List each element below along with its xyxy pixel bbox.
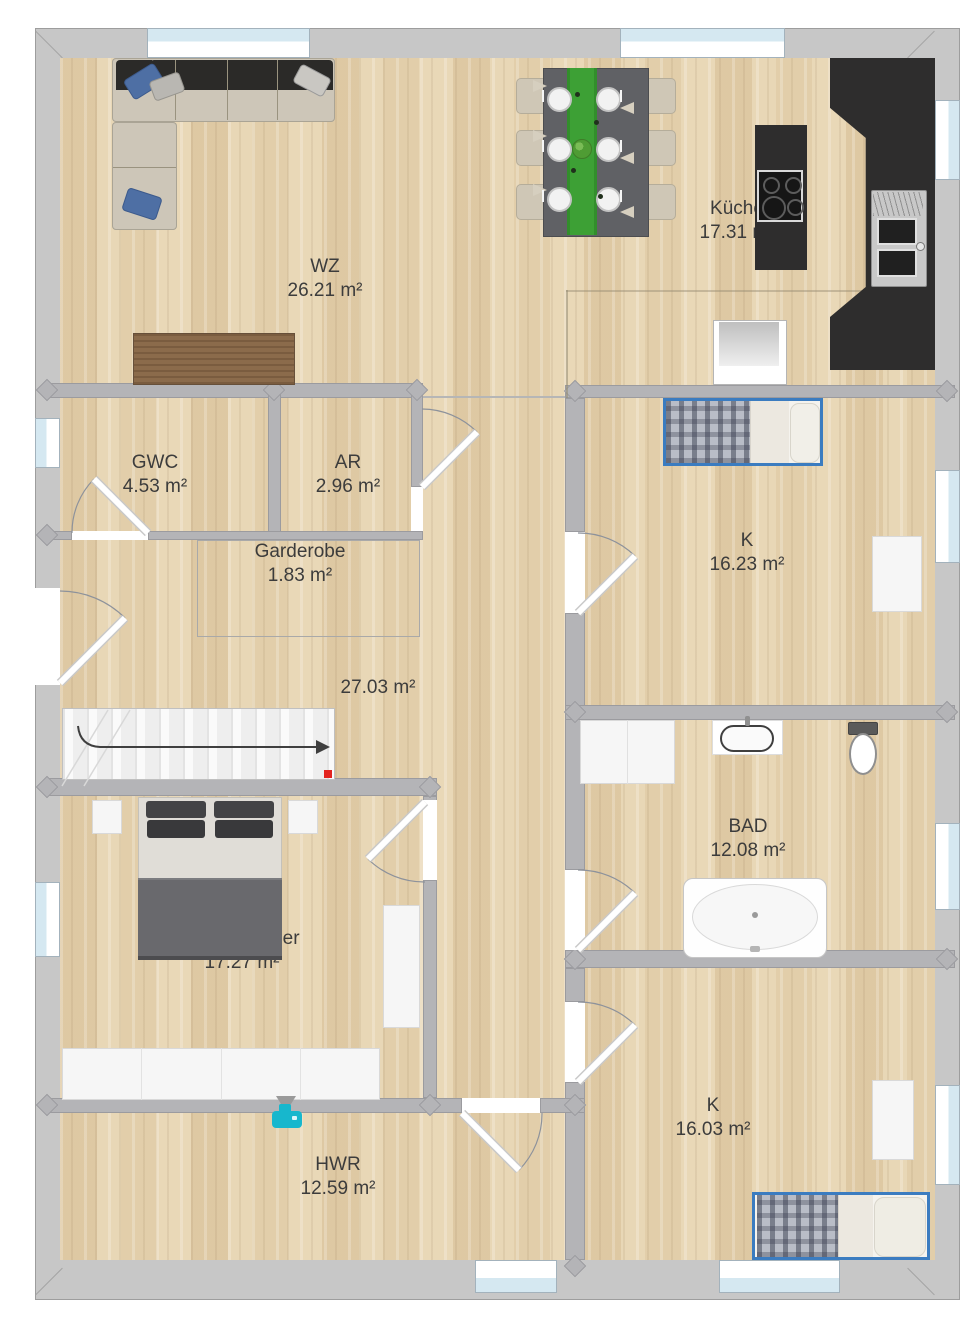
cutlery <box>620 90 622 102</box>
cutlery <box>542 90 544 102</box>
tv-sideboard <box>133 333 295 385</box>
camera-icon <box>272 1111 302 1128</box>
passage-threshold <box>423 396 565 398</box>
wall <box>565 705 955 720</box>
bed-k2-blanket <box>757 1195 838 1257</box>
gwc-door-opening <box>72 531 148 540</box>
kitchen-zone-divider <box>566 290 568 398</box>
hwr-door-opening <box>462 1098 540 1113</box>
room-area: 16.03 m² <box>676 1118 751 1142</box>
room-area: 2.96 m² <box>316 475 380 499</box>
room-name: WZ <box>288 255 363 279</box>
bathtub-faucet <box>750 946 760 952</box>
room-label-gwc: GWC 4.53 m² <box>123 451 187 499</box>
wardrobe-side <box>383 905 420 1028</box>
wall <box>565 385 955 398</box>
washbasin <box>720 725 774 752</box>
room-name: AR <box>316 451 380 475</box>
k1-door-opening <box>565 532 585 613</box>
room-area: 1.83 m² <box>255 564 346 588</box>
room-label-garderobe: Garderobe 1.83 m² <box>255 540 346 588</box>
bed-k2-pillow <box>874 1197 926 1257</box>
room-name: Garderobe <box>255 540 346 564</box>
bed-pillow <box>215 820 273 838</box>
floor-plan: WZ 26.21 m² Küche 17.31 m² GWC 4.53 m² A… <box>0 0 970 1328</box>
entrance-door-opening <box>35 588 60 685</box>
bed-k1-pillow <box>790 403 820 463</box>
sofa-seam <box>277 60 278 120</box>
room-name: HWR <box>301 1153 376 1177</box>
plate <box>596 187 621 212</box>
room-label-hwr: HWR 12.59 m² <box>301 1153 376 1201</box>
k2-door-opening <box>565 1002 585 1082</box>
room-label-k2: K 16.03 m² <box>676 1094 751 1142</box>
wardrobe-divider <box>221 1048 222 1100</box>
bed-footboard <box>138 956 282 960</box>
camera-icon-dot <box>292 1116 297 1120</box>
window-wz-top <box>147 28 310 58</box>
table-decor-dot <box>575 92 580 97</box>
wall <box>423 880 437 1098</box>
cooktop-burner <box>762 196 786 220</box>
wall <box>148 531 423 540</box>
wall <box>48 383 423 398</box>
bed-pillow <box>147 820 205 838</box>
cooktop-burner <box>763 177 780 194</box>
wardrobe-divider <box>300 1048 301 1100</box>
stairs-start-marker <box>324 770 332 778</box>
cutlery <box>542 140 544 152</box>
plate <box>547 87 572 112</box>
wall <box>268 383 281 540</box>
table-decor-dot <box>598 194 603 199</box>
room-area: 12.59 m² <box>301 1177 376 1201</box>
window-k1 <box>935 470 960 563</box>
room-name: GWC <box>123 451 187 475</box>
window-kueche-top <box>620 28 785 58</box>
wall <box>565 968 585 1002</box>
plate <box>596 137 621 162</box>
room-area: 16.23 m² <box>710 553 785 577</box>
plate <box>596 87 621 112</box>
room-label-k1: K 16.23 m² <box>710 529 785 577</box>
bad-door-opening <box>565 870 585 950</box>
room-name: K <box>676 1094 751 1118</box>
schlafzimmer-door-opening <box>423 800 437 880</box>
bed-pillow <box>146 801 206 818</box>
cooktop-burner <box>785 177 802 194</box>
cabinet-divider <box>627 720 628 784</box>
sofa-seam <box>113 167 176 168</box>
room-area: 27.03 m² <box>341 676 416 700</box>
ar-door-opening <box>411 487 423 531</box>
desk-k1 <box>872 536 922 612</box>
sink-basin <box>877 249 917 277</box>
room-label-bad: BAD 12.08 m² <box>711 815 786 863</box>
bed-k1-blanket <box>666 401 750 463</box>
window-schlafzimmer <box>35 882 60 957</box>
bed-pillow <box>214 801 274 818</box>
window-bottom-corridor <box>475 1260 557 1293</box>
sink-basin <box>877 218 917 245</box>
table-decor-dot <box>594 120 599 125</box>
wall <box>48 1098 462 1113</box>
bed-k1-sheet <box>750 401 789 463</box>
desk-k2 <box>872 1080 914 1160</box>
nightstand <box>288 800 318 834</box>
bed-blanket <box>138 878 282 956</box>
wall <box>565 398 585 532</box>
bed-k2-sheet <box>838 1195 873 1257</box>
window-bottom-k2 <box>719 1260 840 1293</box>
wardrobe-divider <box>141 1048 142 1100</box>
sink-drainer <box>873 192 923 216</box>
room-name: BAD <box>711 815 786 839</box>
room-area: 4.53 m² <box>123 475 187 499</box>
plate <box>547 187 572 212</box>
cutlery <box>620 190 622 202</box>
cutlery <box>620 140 622 152</box>
room-area: 26.21 m² <box>288 279 363 303</box>
window-kueche-right <box>935 100 960 180</box>
room-label-wz: WZ 26.21 m² <box>288 255 363 303</box>
room-area: 12.08 m² <box>711 839 786 863</box>
room-label-flur: 27.03 m² <box>341 676 416 700</box>
bathtub-drain <box>752 912 758 918</box>
cutlery <box>542 190 544 202</box>
table-decor-dot <box>571 168 576 173</box>
wall <box>48 778 437 796</box>
fruit-bowl <box>572 139 592 159</box>
sofa-seam <box>227 60 228 120</box>
window-k2 <box>935 1085 960 1185</box>
plate <box>547 137 572 162</box>
room-label-ar: AR 2.96 m² <box>316 451 380 499</box>
room-name: K <box>710 529 785 553</box>
toilet <box>849 733 877 775</box>
cooktop-burner <box>787 199 804 216</box>
window-gwc <box>35 418 60 468</box>
staircase <box>62 708 335 780</box>
sink-faucet <box>916 242 925 251</box>
kitchen-appliance-front <box>719 322 779 366</box>
nightstand <box>92 800 122 834</box>
window-bad <box>935 823 960 910</box>
basin-faucet <box>745 716 750 726</box>
